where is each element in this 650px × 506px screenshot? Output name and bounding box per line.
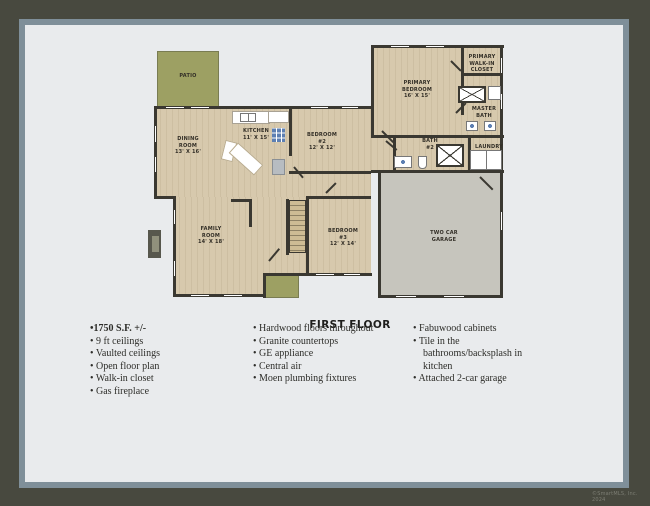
room-label-two-car-garage: TWO CAR GARAGE (406, 230, 482, 243)
window-marker (342, 106, 358, 109)
room-label-bedroom-3: BEDROOM #3 12' X 14' (305, 228, 381, 248)
page: PATIO DINING ROOM 13' X 16' KITCHEN 11' … (0, 0, 650, 506)
window-marker (344, 273, 360, 276)
refrigerator-icon (272, 159, 285, 175)
wall-segment (154, 106, 372, 109)
room-label-master-bath: MASTER BATH (446, 106, 522, 119)
window-marker (154, 157, 157, 172)
front-stoop (263, 274, 299, 298)
wall-segment (249, 199, 252, 227)
room-label-bedroom-2: BEDROOM #2 12' X 12' (284, 132, 360, 152)
window-marker (191, 106, 209, 109)
feature-item: • Fabuwood cabinets (413, 323, 573, 336)
feature-item: • Central air (253, 361, 423, 374)
feature-item: • Hardwood floors throughout (253, 323, 423, 336)
floor-plan: PATIO DINING ROOM 13' X 16' KITCHEN 11' … (146, 42, 518, 312)
feature-item: •1750 S.F. +/- (90, 323, 250, 336)
bath2-toilet (418, 156, 427, 169)
feature-item: • GE appliance (253, 348, 423, 361)
master-sink (488, 86, 501, 100)
bath2-vanity (394, 156, 412, 168)
feature-item: • Gas fireplace (90, 386, 250, 399)
staircase (289, 200, 306, 253)
wall-segment (231, 199, 252, 202)
window-marker (173, 261, 176, 276)
room-label-kitchen: KITCHEN 11' X 15' (218, 128, 294, 141)
room-label-family-room: FAMILY ROOM 14' X 18' (173, 226, 249, 246)
wall-segment (173, 294, 266, 297)
inner-mat: PATIO DINING ROOM 13' X 16' KITCHEN 11' … (19, 19, 629, 488)
window-marker (224, 294, 242, 297)
features-column-1: •1750 S.F. +/- • 9 ft ceilings • Vaulted… (90, 323, 250, 398)
feature-item: • Vaulted ceilings (90, 348, 250, 361)
wall-segment (263, 273, 266, 298)
window-marker (500, 212, 503, 230)
room-label-patio: PATIO (150, 73, 226, 80)
room-label-primary-bedroom: PRIMARY BEDROOM 16' X 15' (379, 80, 455, 100)
feature-item: • 9 ft ceilings (90, 336, 250, 349)
feature-item: • Tile in the bathrooms/backsplash in ki… (413, 336, 573, 374)
master-tub (458, 86, 486, 103)
room-label-dining-room: DINING ROOM 13' X 16' (150, 136, 226, 156)
toilet-icon (466, 121, 478, 131)
wall-segment (371, 170, 504, 173)
feature-item: • Granite countertops (253, 336, 423, 349)
sink-icon (484, 121, 496, 131)
window-marker (166, 106, 184, 109)
window-marker (173, 210, 176, 224)
features-column-2: • Hardwood floors throughout • Granite c… (253, 323, 423, 386)
feature-item: • Moen plumbing fixtures (253, 373, 423, 386)
window-marker (191, 294, 209, 297)
fireplace-hearth (152, 236, 159, 252)
copyright-text: ©SmartMLS, Inc. 2024 (592, 491, 650, 503)
window-marker (396, 295, 416, 298)
kitchen-sink (240, 113, 256, 122)
feature-item: • Open floor plan (90, 361, 250, 374)
wall-segment (306, 196, 371, 199)
room-label-primary-walk-in-closet: PRIMARY WALK-IN CLOSET (444, 54, 520, 74)
window-marker (391, 45, 409, 48)
wall-segment (371, 45, 374, 138)
washer-dryer-icon (470, 150, 502, 170)
window-marker (426, 45, 444, 48)
window-marker (311, 106, 328, 109)
window-marker (316, 273, 334, 276)
window-marker (444, 295, 464, 298)
feature-item: • Walk-in closet (90, 373, 250, 386)
features-column-3: • Fabuwood cabinets • Tile in the bathro… (413, 323, 573, 386)
room-label-laundry: LAUNDRY (451, 144, 527, 151)
kitchen-counter (268, 111, 289, 123)
feature-item: • Attached 2-car garage (413, 373, 573, 386)
